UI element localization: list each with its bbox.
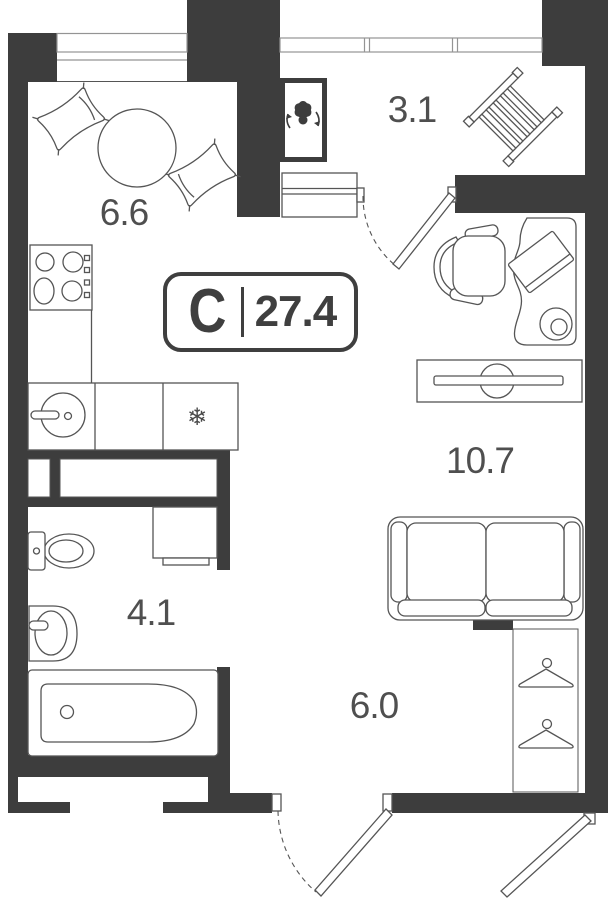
wall-kitchen-balcony (237, 82, 280, 217)
room-label-bathroom: 4.1 (127, 592, 175, 634)
wall-below-counter (28, 450, 217, 459)
entrance-door-leaf (315, 809, 392, 896)
room-label-hall: 6.0 (350, 685, 398, 727)
apartment-area-value: 27.4 (255, 290, 337, 334)
entrance-door (272, 794, 392, 896)
neighbor-door (501, 813, 595, 897)
sofa-icon (388, 517, 583, 620)
tv-screen-icon (434, 376, 563, 385)
neighbor-door-leaf (501, 815, 591, 897)
windows (57, 34, 542, 82)
dining-table-icon (98, 109, 176, 187)
room-label-living: 10.7 (446, 440, 514, 482)
balcony-door-swing (363, 196, 396, 266)
wall-right (585, 66, 608, 813)
floor-plan: 6.6 3.1 10.7 4.1 6.0 С 27.4 ❄ (0, 0, 608, 898)
balcony-door (282, 173, 456, 269)
office-chair-icon (434, 224, 505, 305)
balcony-door-leaf (393, 193, 455, 269)
bathtub-icon (28, 670, 218, 756)
room-label-balcony: 3.1 (388, 89, 436, 131)
wall-top-right-block (542, 0, 608, 66)
desk-icon (508, 218, 576, 345)
wall-shaft-divider (50, 459, 60, 497)
badge-divider (241, 287, 244, 337)
kitchen-window (57, 34, 187, 82)
wall-bath-right-lower (217, 667, 230, 755)
apartment-type-badge: С 27.4 (163, 272, 358, 352)
apartment-type-letter: С (188, 281, 226, 343)
vent-unit (283, 81, 325, 160)
hanger-icon (519, 720, 573, 749)
wall-above-bathroom (28, 497, 217, 507)
tv-stand-icon (417, 360, 582, 402)
crib-icon (464, 68, 563, 167)
toilet-icon (28, 532, 94, 570)
cooktop-icon (30, 245, 92, 310)
wall-bottom-stub-left (18, 802, 70, 813)
balcony-window (280, 38, 542, 52)
wall-bath-right-upper (217, 450, 230, 570)
cup-icon (540, 308, 572, 340)
wall-below-bath (8, 755, 230, 777)
wall-bottom-right (392, 793, 585, 813)
hanger-icon (519, 659, 573, 688)
wall-bottom-left-of-door (230, 793, 272, 813)
bathroom-sink-icon (29, 606, 77, 661)
wall-recess-column (208, 777, 230, 802)
wall-left (8, 82, 28, 777)
floor-plan-drawing (0, 0, 608, 898)
wall-balcony-room (455, 175, 585, 213)
washing-machine-icon (153, 507, 217, 565)
wall-top-left-block (8, 33, 57, 82)
wardrobe (513, 629, 578, 792)
snowflake-icon: ❄ (187, 403, 207, 431)
wall-top-center-pillar (187, 0, 280, 82)
wall-left-bottom (8, 777, 18, 813)
room-label-kitchen: 6.6 (100, 192, 148, 234)
entrance-door-swing (278, 811, 316, 892)
